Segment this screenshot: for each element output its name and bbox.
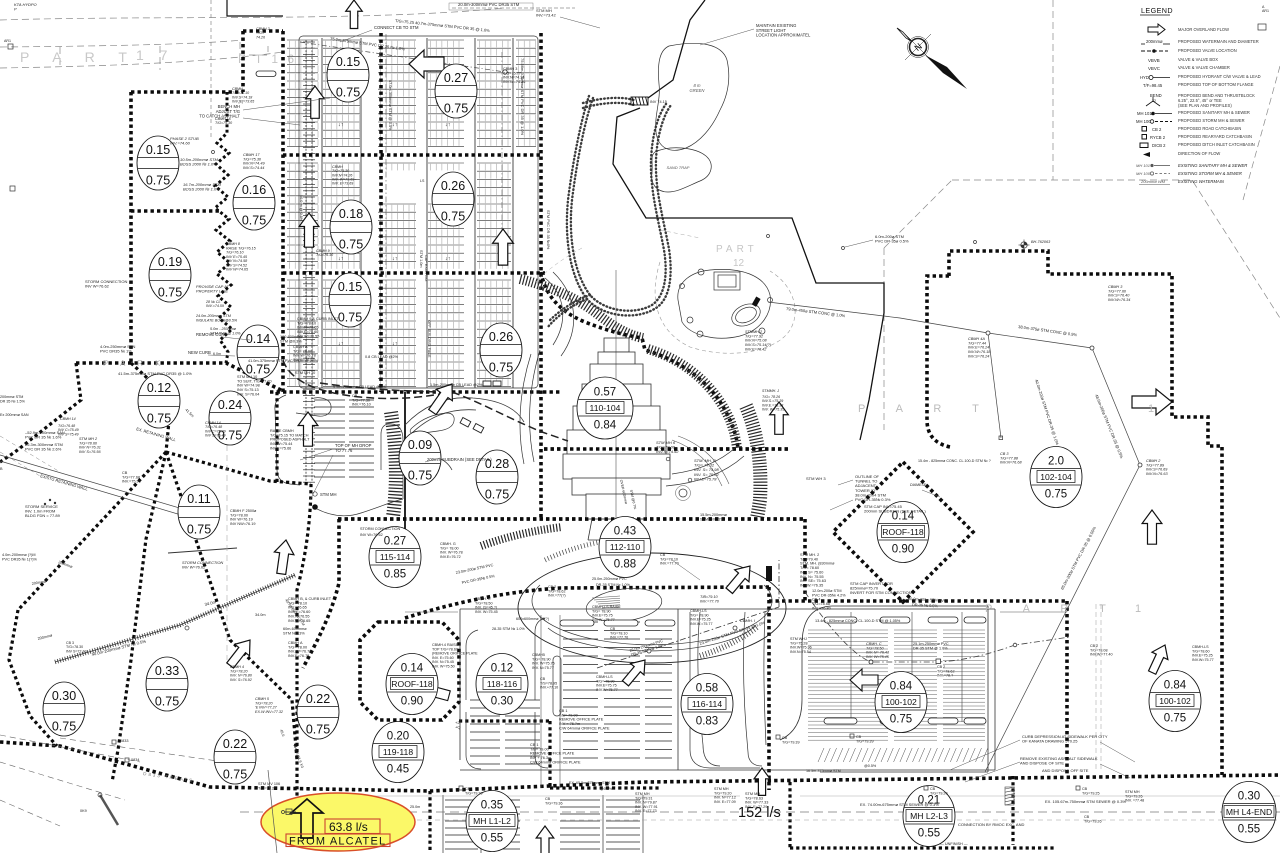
svg-text:INV W=76.78: INV W=76.78 [293,354,316,358]
svg-text:INV.S=74.44: INV.S=74.44 [243,166,264,170]
svg-text:STM @0.3%: STM @0.3% [280,339,302,343]
svg-text:INV.W=76.34: INV.W=76.34 [1108,298,1130,302]
svg-text:CB 3: CB 3 [1000,452,1009,456]
svg-text:INV.N=74.34: INV.N=74.34 [503,76,525,80]
svg-text:100-102: 100-102 [1159,696,1191,706]
svg-text:INV.=78.?: INV.=78.? [937,674,953,678]
svg-text:0.75: 0.75 [187,523,211,537]
svg-text:57.0m-300mmø STM @ 0.5%: 57.0m-300mmø STM @ 0.5% [388,80,392,131]
svg-text:0.30: 0.30 [1238,791,1260,803]
svg-text:AR1: AR1 [1262,9,1269,13]
svg-text:INV.[E]=73.65: INV.[E]=73.65 [232,99,254,103]
svg-text:EX.W INV=77.32: EX.W INV=77.32 [255,710,283,714]
svg-text:0.14: 0.14 [246,332,270,346]
svg-text:CBMH 4A: CBMH 4A [968,337,985,341]
svg-text:118-116: 118-116 [487,679,517,689]
svg-text:200mmø: 200mmø [1146,39,1163,44]
svg-text:— UNFINISH —: — UNFINISH — [940,842,968,846]
svg-text:INV. W=75.45: INV. W=75.45 [866,655,890,659]
svg-text:AR1: AR1 [4,39,11,43]
svg-text:SAND TRAP: SAND TRAP [667,165,690,170]
svg-text:STMMH. J: STMMH. J [762,389,779,393]
svg-text:PROPOSED REARYARD CATCHBASIN: PROPOSED REARYARD CATCHBASIN [1178,134,1252,139]
svg-text:112-110: 112-110 [610,542,640,552]
svg-text:INV.W=75.77: INV.W=75.77 [596,688,618,692]
svg-text:↓↑: ↓↑ [338,341,344,347]
svg-text:INV.=74.59: INV.=74.59 [206,304,224,308]
svg-text:110-104: 110-104 [590,403,621,413]
svg-text:INV S=77.10: INV S=77.10 [66,649,86,653]
svg-text:KTA HYDPO: KTA HYDPO [14,2,37,7]
svg-text:0.15: 0.15 [336,55,360,69]
svg-text:600x600mmø T.5(?): 600x600mmø T.5(?) [516,617,549,621]
svg-text:P: P [14,7,17,12]
svg-text:INVERT FOR STM CONNECTION: INVERT FOR STM CONNECTION [850,590,912,595]
svg-text:CBMH B, & CURB INLET: CBMH B, & CURB INLET [288,597,332,601]
svg-text:VBVC: VBVC [1148,66,1160,71]
svg-text:VALVE & VALVE CHAMBER: VALVE & VALVE CHAMBER [1178,65,1230,70]
svg-text:INV.E=76.72: INV.E=76.72 [440,555,461,559]
svg-text:12.0m-200ø STM: 12.0m-200ø STM [812,589,842,593]
svg-text:34.0m: 34.0m [255,613,266,617]
svg-text:Ex 200mmø SAN: Ex 200mmø SAN [0,413,29,417]
svg-text:INV W=76.62: INV W=76.62 [85,284,110,289]
svg-text:INV + 76.3m: INV + 76.3m [530,756,551,760]
svg-text:@0.5%: @0.5% [864,764,877,768]
svg-text:CBMH A: CBMH A [288,641,303,645]
svg-text:MH 101: MH 101 [1137,111,1152,116]
svg-text:0K9: 0K9 [80,809,87,813]
svg-text:0.84: 0.84 [1164,680,1187,692]
svg-text:OFF BUILDING FACE: OFF BUILDING FACE [427,320,431,358]
svg-text:EXISTING STORM MH & SEWER: EXISTING STORM MH & SEWER [1178,171,1242,176]
svg-text:REMOVE CURB: REMOVE CURB [196,332,227,337]
svg-text:PROPOSED VALVE LOCATION: PROPOSED VALVE LOCATION [1178,48,1237,53]
svg-text:T/G=79.20: T/G=79.20 [930,791,948,795]
svg-text:STM MH: STM MH [320,492,337,497]
svg-text:12: 12 [733,258,745,269]
svg-text:INV.=73.42: INV.=73.42 [536,13,557,18]
svg-text:13.4m - 825mmø CONC. CL.100-D: 13.4m - 825mmø CONC. CL.100-D STM @ 1.05… [815,619,901,623]
svg-text:INV. W=75.50: INV. W=75.50 [432,664,455,668]
svg-text:0.26: 0.26 [489,330,513,344]
svg-text:0.27: 0.27 [384,536,406,548]
svg-text:BLDG FDN = 77.89: BLDG FDN = 77.89 [25,513,61,518]
svg-text:LS: LS [420,179,425,183]
svg-text:60m-600mmø: 60m-600mmø [283,627,307,631]
svg-text:15.4m - 825mmø CONC. CL.100-D: 15.4m - 825mmø CONC. CL.100-D STM № ? [918,459,991,463]
svg-text:0.75: 0.75 [441,210,465,224]
svg-text:BH-762063: BH-762063 [1031,240,1051,244]
svg-text:RYCB 2: RYCB 2 [1150,135,1166,140]
svg-text:0.75: 0.75 [408,469,432,483]
svg-text:GREEN: GREEN [690,88,706,93]
svg-text:BEND: BEND [1150,93,1162,98]
svg-text:LEGEND: LEGEND [1141,6,1173,15]
svg-text:41.0m-375mmø STM PVC DR35 @: 41.0m-375mmø STM PVC DR35 @ 1.0% [248,359,319,363]
svg-text:INV.W=76.18: INV.W=76.18 [968,350,991,354]
svg-text:20.0m-300mmø PVC DR35 STM: 20.0m-300mmø PVC DR35 STM [458,2,520,7]
svg-text:0.75: 0.75 [306,723,330,737]
svg-text:AND DISPOSE OFF SITE: AND DISPOSE OFF SITE [1042,768,1089,773]
svg-text:PROPERTY LINE: PROPERTY LINE [196,289,228,294]
svg-text:CBMH 17: CBMH 17 [243,153,260,157]
svg-text:INV.W.=75.77: INV.W.=75.77 [690,622,713,626]
svg-text:INV NW=76.19: INV NW=76.19 [230,522,255,526]
svg-text:PART: PART [716,244,758,255]
svg-text:CAP EXISTING: CAP EXISTING [424,255,428,282]
svg-text:T/G=78.68: T/G=78.68 [812,602,830,606]
svg-text:P A R T: P A R T [985,603,1120,615]
svg-text:PVC DR35 № 1%: PVC DR35 № 1% [100,349,132,354]
svg-text:T/F=98.45: T/F=98.45 [1143,83,1163,88]
svg-text:INV.S=75.14(?): INV.S=75.14(?) [745,343,772,347]
svg-text:INV.S=74.92: INV.S=74.92 [656,449,679,454]
svg-text:0.09: 0.09 [408,438,432,452]
svg-text:AND DISPOSE OF SITE: AND DISPOSE OF SITE [1020,761,1064,766]
svg-text:0.55: 0.55 [481,833,503,845]
svg-text:INV = 76.?m: INV = 76.?m [559,722,580,726]
svg-text:EXISTING SANITARY MH & SEWER: EXISTING SANITARY MH & SEWER [1178,163,1247,168]
svg-text:@0.5%: @0.5% [600,787,613,791]
svg-text:INV. N=75.77: INV. N=75.77 [532,666,554,670]
svg-text:CBMH F 2500ø: CBMH F 2500ø [230,509,257,513]
svg-text:INV.N=76.68: INV.N=76.68 [1000,461,1022,465]
svg-text:0.18: 0.18 [339,207,363,221]
svg-text:PVC DR 35 № 2.6%: PVC DR 35 № 2.6% [25,447,62,452]
svg-text:CBMH 3: CBMH 3 [1108,285,1123,289]
svg-text:CBMH 14: CBMH 14 [60,417,76,421]
svg-text:INV.W=75.44: INV.W=75.44 [270,442,292,446]
svg-text:5.5m-200mmø CB LEAD @2%: 5.5m-200mmø CB LEAD @2% [333,385,386,389]
svg-text:INV.=77.70: INV.=77.70 [610,636,628,640]
svg-text:P A R K: P A R K [103,359,165,368]
svg-text:MH L2-L3: MH L2-L3 [910,811,948,821]
svg-text:INV. W=75.35: INV. W=75.35 [762,407,784,411]
svg-text:STM 1.0m: STM 1.0m [419,250,423,268]
svg-text:↓↑: ↓↑ [445,256,451,262]
svg-text:0.75: 0.75 [489,361,513,375]
svg-text:T/G=79.26: T/G=79.26 [1084,819,1102,823]
svg-text:INV.E=76.24: INV.E=76.24 [968,346,989,350]
svg-text:INV.E=75.78: INV.E=75.78 [694,476,717,481]
svg-text:0.35: 0.35 [481,800,503,812]
svg-text:INV S=75.13: INV S=75.13 [237,388,259,392]
svg-text:↓↑: ↓↑ [338,122,344,128]
svg-text:INV. SE= 75.63: INV. SE= 75.63 [800,579,826,583]
svg-text:0.24: 0.24 [218,398,242,412]
svg-text:PVC DR35 № 1(?)%: PVC DR35 № 1(?)% [2,557,38,561]
svg-text:FROM ALCATEL: FROM ALCATEL [289,836,386,848]
svg-text:116-114: 116-114 [692,699,722,709]
svg-text:PROPOSED STORM MH & SEWER: PROPOSED STORM MH & SEWER [1178,118,1245,123]
svg-text:16.5m-375mmø STM: 16.5m-375mmø STM [806,769,841,773]
svg-text:74.26: 74.26 [256,35,265,39]
svg-text:PROPOSED HYDRANT C/W VALVE & L: PROPOSED HYDRANT C/W VALVE & LEAD [1178,74,1261,79]
svg-text:TO 77.76: TO 77.76 [335,448,353,453]
svg-text:STM. MH. (830mmø: STM. MH. (830mmø [800,562,835,566]
svg-text:0.85: 0.85 [384,569,406,581]
svg-text:CB: CB [352,394,358,398]
svg-text:0.58: 0.58 [696,683,718,695]
svg-text:2.0: 2.0 [1048,456,1064,468]
svg-text:0.27: 0.27 [444,71,468,85]
svg-text:INV.N=75.08: INV.N=75.08 [745,339,767,343]
svg-text:INV.S=76.24: INV.S=76.24 [968,355,989,359]
svg-text:+Q: +Q [455,725,460,730]
svg-text:INV S=75.49: INV S=75.49 [58,432,78,436]
svg-text:PROPOSED TOP OF BOTTOM FLANGE: PROPOSED TOP OF BOTTOM FLANGE [1178,82,1254,87]
svg-text:25.1m-250mmø PVC: 25.1m-250mmø PVC [913,642,949,646]
svg-text:T/G=79.39: T/G=79.39 [465,791,483,795]
svg-text:PVC DR-35ø 0.5%: PVC DR-35ø 0.5% [875,239,909,244]
svg-text:0.75: 0.75 [158,286,182,300]
svg-text:41.5m-375mmø STM PVC DR35 @: 41.5m-375mmø STM PVC DR35 @ 1.0% [118,371,192,376]
svg-text:0.12: 0.12 [147,381,171,395]
svg-text:CBMH A: CBMH A [293,345,308,349]
svg-text:0.75: 0.75 [223,768,247,782]
svg-text:INV S=75.49: INV S=75.49 [205,433,225,437]
svg-text:4.0m-200mmø (?)M: 4.0m-200mmø (?)M [2,553,36,557]
svg-text:REMOVE OFFICE PLATE: REMOVE OFFICE PLATE [559,718,604,722]
svg-text:0.20: 0.20 [387,731,409,743]
svg-text:INV.E=76.42: INV.E=76.42 [745,348,767,352]
svg-text:PROPOSED WATERMAIN AND DIAMETE: PROPOSED WATERMAIN AND DIAMETER [1178,39,1259,44]
svg-text:0834: 0834 [131,758,139,762]
svg-text:INV.S=76.69: INV.S=76.69 [1146,468,1168,472]
svg-text:EX. 105.67m-750mmø STM SEWER @: EX. 105.67m-750mmø STM SEWER @ 0.3% [1045,799,1126,804]
svg-text:0.75: 0.75 [890,714,912,726]
svg-text:INV. E=77.73: INV. E=77.73 [635,809,657,813]
svg-text:INV.=77.70: INV.=77.70 [660,562,679,566]
svg-text:0.75: 0.75 [155,695,179,709]
svg-text:0.22: 0.22 [223,737,247,751]
svg-text:INV.N=74.49: INV.N=74.49 [243,162,265,166]
svg-text:0.75: 0.75 [1045,489,1067,501]
svg-text:MH L1-L2: MH L1-L2 [473,816,511,826]
svg-text:MH 100: MH 100 [1136,119,1151,124]
svg-text:0.88: 0.88 [614,559,636,571]
svg-text:0.30: 0.30 [491,696,513,708]
svg-text:CBMH 2: CBMH 2 [1146,459,1161,463]
svg-text:DIAMESE: DIAMESE [910,483,927,487]
svg-text:P A R T: P A R T [858,403,993,415]
svg-text:INV.=77(?): INV.=77(?) [548,594,566,598]
svg-text:0.75: 0.75 [146,174,170,188]
svg-text:INV N=76.31: INV N=76.31 [79,446,101,450]
svg-text:INV.E=75.66: INV.E=75.66 [270,447,291,451]
svg-text:INV. W=75.45: INV. W=75.45 [475,610,498,614]
svg-text:0.84: 0.84 [594,420,617,432]
svg-text:1: 1 [1148,403,1154,415]
svg-text:200mm SUBDRAIN (SEE DETAIL): 200mm SUBDRAIN (SEE DETAIL) [864,509,926,514]
svg-text:INV.W=75.77: INV.W=75.77 [1192,658,1214,662]
svg-text:0.16: 0.16 [242,183,266,197]
svg-text:INV. E=77.29: INV. E=77.29 [745,805,767,809]
svg-text:0.55: 0.55 [1238,824,1260,836]
svg-text:STM @0.71%: STM @0.71% [700,517,724,521]
svg-text:0.33: 0.33 [155,664,179,678]
svg-text:C/W 64mmø ORIFICE PLATE: C/W 64mmø ORIFICE PLATE [530,761,581,765]
svg-text:0.15: 0.15 [338,280,362,294]
svg-text:0.22: 0.22 [306,692,330,706]
svg-text:MAJOR OVERLAND FLOW: MAJOR OVERLAND FLOW [1178,27,1229,32]
svg-text:102-104: 102-104 [1040,472,1072,482]
svg-text:INV.W=74.36: INV.W=74.36 [503,80,525,84]
svg-text:STM PVC DR 35 №0%: STM PVC DR 35 №0% [546,210,550,250]
svg-text:0.90: 0.90 [892,544,914,556]
svg-text:0.26: 0.26 [441,179,465,193]
svg-text:(SEE PLAN AND PROFILES): (SEE PLAN AND PROFILES) [1178,103,1232,108]
svg-text:T/G=79.25: T/G=79.25 [258,786,276,790]
svg-text:T/G=79.36: T/G=79.36 [545,801,563,805]
svg-text:INV.+77.10: INV.+77.10 [540,686,558,690]
svg-text:0.75: 0.75 [52,720,76,734]
svg-text:BOSS 2000 № 1.0%: BOSS 2000 № 1.0% [180,162,217,167]
svg-text:ROOF-118: ROOF-118 [391,679,433,689]
svg-text:↓↑: ↓↑ [392,256,398,262]
svg-text:15.5m-200mmø: 15.5m-200mmø [700,513,727,517]
svg-text:INV.W.=76.35: INV.W.=76.35 [800,584,823,588]
svg-text:1.5m-200mmø CB LEAD @2%: 1.5m-200mmø CB LEAD @2% [430,383,483,387]
svg-text:CONNECTION BY RMOC EXC. AND: CONNECTION BY RMOC EXC. AND [958,822,1024,827]
svg-text:RAISE CBMH: RAISE CBMH [270,429,294,433]
svg-text:STM №0.3%: STM №0.3% [283,631,305,635]
svg-text:MH 101: MH 101 [1136,163,1150,168]
svg-text:100-102: 100-102 [885,697,917,707]
svg-text:CB 2: CB 2 [1152,127,1162,132]
svg-text:DIRECTION OF FLOW: DIRECTION OF FLOW [1178,151,1220,156]
svg-text:0.75: 0.75 [147,412,171,426]
svg-text:ROOF-118: ROOF-118 [882,527,924,537]
svg-text:INV W=74.98: INV W=74.98 [237,384,260,388]
svg-text:PROPOSED DITCH INLET CATCHBASI: PROPOSED DITCH INLET CATCHBASIN [1178,142,1255,147]
svg-text:0.75: 0.75 [242,214,266,228]
svg-text:STM MH: STM MH [745,792,760,796]
svg-text:INV. S=76.04: INV. S=76.04 [237,393,259,397]
svg-text:OF KANATA DRAWING 570.25: OF KANATA DRAWING 570.25 [1022,739,1078,744]
svg-text:CB 1: CB 1 [530,743,538,747]
svg-text:T/G=79.25: T/G=79.25 [1082,791,1100,795]
svg-text:STM MH 10: STM MH 10 [295,371,315,375]
svg-text:0.75: 0.75 [444,102,468,116]
svg-text:↓↑: ↓↑ [338,256,344,262]
svg-text:PROPOSED ASPHALT: PROPOSED ASPHALT [270,438,310,442]
svg-text:INV W=76.19: INV W=76.19 [230,518,253,522]
svg-text:STM WH 3: STM WH 3 [806,476,826,481]
svg-text:50.0 m @ 0.5%: 50.0 m @ 0.5% [299,195,303,222]
svg-text:T/G=75.30: T/G=75.30 [215,121,232,125]
svg-text:INV S=76.56: INV S=76.56 [79,450,102,454]
svg-text:25.0m: 25.0m [410,805,420,809]
svg-text:CB 1: CB 1 [559,709,567,713]
svg-text:STORM CONNECTION: STORM CONNECTION [360,527,400,531]
svg-text:INV. E=73.69: INV. E=73.69 [332,182,353,186]
svg-text:INV.=76.10: INV.=76.10 [352,403,371,407]
svg-text:0.84: 0.84 [890,681,913,693]
svg-text:DR 35 № 1.5%: DR 35 № 1.5% [0,399,26,403]
svg-text:INV.=77.70: INV.=77.70 [700,599,720,603]
svg-text:T/G=76.10: T/G=76.10 [316,253,333,257]
svg-text:0.14: 0.14 [401,663,424,675]
svg-text:C/W 64mmø ORIFICE PLATE: C/W 64mmø ORIFICE PLATE [559,727,610,731]
svg-text:DICB 2: DICB 2 [1152,143,1166,148]
svg-text:0.75: 0.75 [336,86,360,100]
svg-text:0.45: 0.45 [387,764,409,776]
svg-text:119-118: 119-118 [383,747,413,757]
svg-text:INV. =77.48: INV. =77.48 [1125,799,1144,803]
svg-text:DR-35 STM № 1.0%: DR-35 STM № 1.0% [596,583,631,587]
svg-text:PROPOSED SANITARY MH & SEWER: PROPOSED SANITARY MH & SEWER [1178,110,1250,115]
svg-text:0.57: 0.57 [594,387,616,399]
svg-text:0.11: 0.11 [187,492,210,506]
svg-text:CB 4: CB 4 [812,598,820,602]
svg-text:INV.W.=77.40: INV.W.=77.40 [1090,653,1113,657]
svg-text:CB: CB [660,553,666,557]
svg-text:INV.N=76.63: INV.N=76.63 [1146,472,1168,476]
svg-text:REMOVE OFFICE PLATE: REMOVE OFFICE PLATE [530,752,575,756]
svg-text:25.0m-250mmø PVC: 25.0m-250mmø PVC [592,577,627,581]
svg-text:INV.=75.95: INV.=75.95 [122,480,141,484]
svg-text:CB: CB [122,471,128,475]
svg-text:NEW CURB: NEW CURB [188,350,211,355]
svg-text:115-114: 115-114 [380,552,410,562]
svg-text:INV. W=77.33: INV. W=77.33 [745,801,768,805]
svg-text:INV.=74.60: INV.=74.60 [170,141,191,146]
svg-text:INV. S=76.92: INV. S=76.92 [230,678,252,682]
svg-text:0.30: 0.30 [52,689,76,703]
svg-text:INV.N=75.54: INV.N=75.54 [790,650,811,654]
svg-text:EXISTING WATERMAIN: EXISTING WATERMAIN [1178,179,1225,184]
svg-text:STM MH 2: STM MH 2 [79,437,98,441]
svg-text:INV.W =75.77: INV.W =75.77 [592,618,615,622]
svg-text:INV. E=77.09: INV. E=77.09 [714,800,736,804]
svg-text:LOCATION APPROXIMATEL: LOCATION APPROXIMATEL [756,33,811,38]
svg-text:P A R T: P A R T [20,49,137,65]
svg-text:EX. 74.00m-675mmø STM SEWER @: EX. 74.00m-675mmø STM SEWER @ 0.3% [860,802,939,807]
svg-text:0.75: 0.75 [339,238,363,252]
svg-text:EX. 65.5m-375mmøSTM: EX. 65.5m-375mmøSTM [569,781,610,785]
svg-text:STM MH 10: STM MH 10 [237,375,257,379]
svg-text:T/G= 78.60: T/G= 78.60 [800,566,819,570]
svg-text:0.12: 0.12 [491,663,513,675]
svg-text:MH L4-END: MH L4-END [1226,807,1272,817]
svg-text:1 7: 1 7 [136,47,173,63]
svg-text:0.55: 0.55 [918,828,940,840]
svg-text:INV W=76.62: INV W=76.62 [360,533,383,537]
svg-text:0.19: 0.19 [158,255,182,269]
svg-text:INV. W=76.78: INV. W=76.78 [288,650,311,654]
svg-text:INV.=76.80: INV.=76.80 [812,607,831,611]
svg-text:28-35 STM № 1.0%: 28-35 STM № 1.0% [492,627,525,631]
svg-text:200mmø WM: 200mmø WM [1140,179,1166,184]
svg-text:T/B=79.10: T/B=79.10 [700,595,719,599]
svg-text:PROPOSED ROAD CATCHBASIN: PROPOSED ROAD CATCHBASIN [1178,126,1241,131]
svg-text:INV W=74.65: INV W=74.65 [226,268,249,272]
svg-text:CONNECT CB TO STM: CONNECT CB TO STM [374,25,419,30]
svg-text:VALVE & VALVE BOX: VALVE & VALVE BOX [1178,57,1218,62]
svg-text:VBVB: VBVB [1148,58,1160,63]
svg-text:0833: 0833 [120,739,128,743]
svg-text:T/G=79.39: T/G=79.39 [782,740,800,744]
svg-text:0.75: 0.75 [485,488,509,502]
svg-text:200mm SUBDRAIN (SEE DETAIL): 200mm SUBDRAIN (SEE DETAIL) [427,457,492,462]
svg-text:CBMH 3: CBMH 3 [503,67,517,71]
svg-text:75.56m-375mmø STM PVC DR 35 @: 75.56m-375mmø STM PVC DR 35 @ 1.0% [520,58,525,136]
svg-text:PVC DR-35№ 0.3%: PVC DR-35№ 0.3% [855,497,891,502]
svg-text:MH 100: MH 100 [1136,171,1151,176]
svg-text:0.15: 0.15 [146,143,170,157]
